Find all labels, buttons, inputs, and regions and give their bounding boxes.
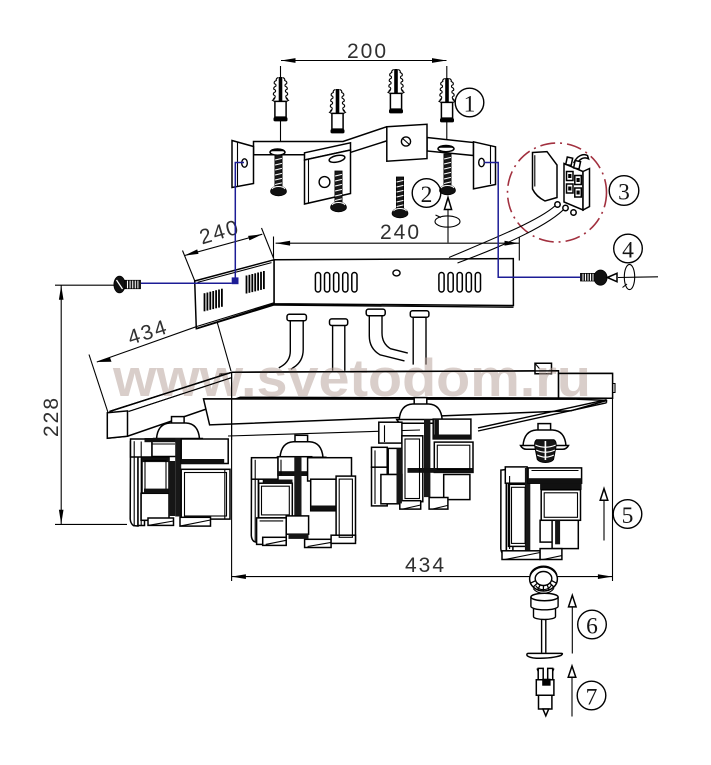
svg-text:6: 6 [586, 614, 598, 640]
svg-text:3: 3 [618, 180, 630, 206]
svg-text:228: 228 [40, 396, 63, 437]
svg-text:240: 240 [380, 221, 421, 244]
svg-text:4: 4 [622, 238, 634, 264]
svg-text:7: 7 [586, 685, 598, 711]
svg-text:434: 434 [405, 554, 446, 577]
svg-text:5: 5 [622, 503, 634, 529]
svg-text:2: 2 [421, 182, 433, 208]
svg-text:200: 200 [347, 40, 388, 63]
svg-text:1: 1 [464, 92, 476, 118]
